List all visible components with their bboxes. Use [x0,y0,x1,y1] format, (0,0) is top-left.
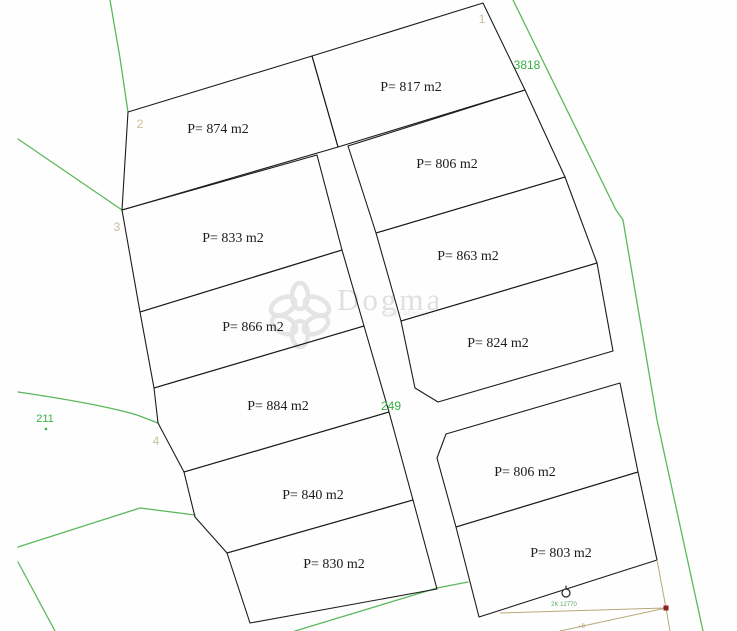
vertex-label-3: 3 [114,220,121,234]
vertex-labels: 1 2 3 4 [114,12,486,448]
survey-markers: 2K 12770 +8 [500,560,670,631]
green-point-dot [45,428,48,431]
survey-line-west [500,608,666,613]
parcel-803-boundary [456,472,657,617]
neighbor-parcel-labels: 3818 211 249 [36,58,540,425]
green-line-left-diagonal [18,139,122,210]
vertex-label-4: 4 [153,434,160,448]
neighbor-label-249: 249 [381,399,401,413]
parcel-803-area-label: P= 803 m2 [530,546,592,561]
benchmark-label: 2K 12770 [551,602,577,608]
cadastral-map: Dogma nekretnine P= 874 m2 P= 833 m2 P= … [0,0,737,631]
benchmark-circle-icon [562,589,570,597]
neighbor-label-3818: 3818 [514,58,541,72]
parcel-806-lower-area-label: P= 806 m2 [494,465,556,480]
survey-line-vertical [657,560,670,631]
parcel-874-area-label: P= 874 m2 [187,122,249,137]
neighbor-label-211: 211 [36,413,54,425]
watermark-flower-icon [268,283,332,347]
parcel-824-area-label: P= 824 m2 [467,336,529,351]
green-line-top-left [110,0,128,112]
parcel-866-area-label: P= 866 m2 [222,320,284,335]
parcel-833-area-label: P= 833 m2 [202,231,264,246]
parcel-830-area-label: P= 830 m2 [303,557,365,572]
survey-line-southwest [560,608,666,631]
parcel-840-area-label: P= 840 m2 [282,488,344,503]
parcel-863-area-label: P= 863 m2 [437,249,499,264]
vertex-label-1: 1 [479,12,486,26]
cadastral-map-svg: Dogma nekretnine P= 874 m2 P= 833 m2 P= … [0,0,737,631]
benchmark-secondary-label: +8 [578,623,587,630]
green-line-bottom [295,582,468,631]
red-point-marker [664,606,669,611]
green-curve-bottom-left [18,562,55,631]
parcel-area-labels: P= 874 m2 P= 833 m2 P= 866 m2 P= 884 m2 … [187,80,592,572]
parcel-817-area-label: P= 817 m2 [380,80,442,95]
parcel-817-boundary [312,3,525,147]
green-curve-mid-left [18,508,195,547]
vertex-label-2: 2 [137,117,144,131]
parcel-840-boundary [184,412,413,553]
parcel-806-upper-area-label: P= 806 m2 [416,157,478,172]
watermark: Dogma nekretnine [268,282,443,347]
parcel-866-boundary [140,250,364,388]
green-line-right-road [513,0,703,631]
parcel-806-lower-boundary [437,383,638,527]
parcel-884-area-label: P= 884 m2 [247,399,309,414]
watermark-tagline: nekretnine [383,309,430,318]
